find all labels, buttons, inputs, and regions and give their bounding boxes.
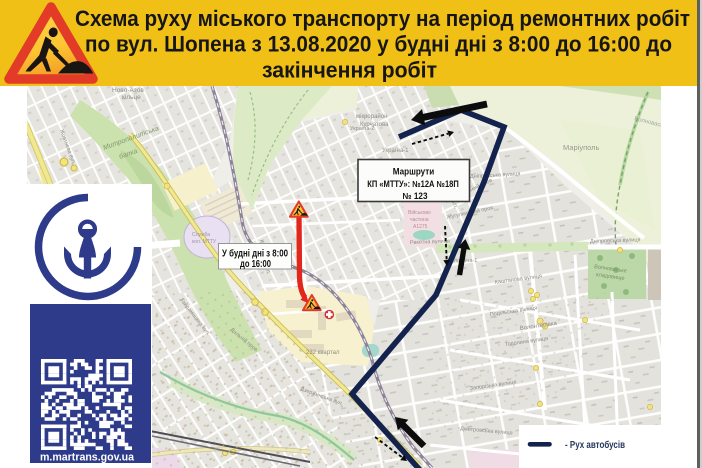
svg-text:до 16:00: до 16:00 [240, 259, 271, 270]
svg-text:m.martrans.gov.ua: m.martrans.gov.ua [40, 452, 135, 464]
svg-text:Схема руху міського транспорту: Схема руху міського транспорту на період… [75, 6, 690, 31]
svg-text:Маріуполь: Маріуполь [563, 143, 600, 152]
svg-text:мікрорайон: мікрорайон [356, 113, 387, 120]
svg-text:КП «МТТУ»: №12А №18П: КП «МТТУ»: №12А №18П [367, 179, 459, 189]
svg-text:- Рух автобусів: - Рух автобусів [565, 439, 625, 451]
svg-text:закінчення робіт: закінчення робіт [262, 57, 437, 82]
svg-text:по вул. Шопена з 13.08.2020 у: по вул. Шопена з 13.08.2020 у будні дні … [85, 32, 672, 57]
svg-text:Україна-1: Україна-1 [382, 148, 409, 154]
svg-text:Україна-2: Україна-2 [350, 126, 374, 132]
svg-text:Маршрути: Маршрути [393, 166, 435, 177]
svg-text:Служба: Служба [192, 232, 210, 238]
svg-text:232 квартал: 232 квартал [306, 350, 340, 356]
svg-text:А1275: А1275 [413, 224, 428, 230]
svg-text:Військово: Військово [408, 209, 431, 216]
svg-text:кол. МТТУ: кол. МТТУ [192, 239, 217, 245]
svg-text:кільце: кільце [122, 93, 141, 101]
svg-text:Ново-Азов: Ново-Азов [112, 87, 144, 94]
svg-text:Україна-1: Україна-1 [453, 258, 477, 264]
svg-text:У будні дні з 8:00: У будні дні з 8:00 [222, 247, 288, 259]
svg-text:№ 123: № 123 [403, 191, 428, 201]
svg-text:частина: частина [410, 217, 429, 223]
